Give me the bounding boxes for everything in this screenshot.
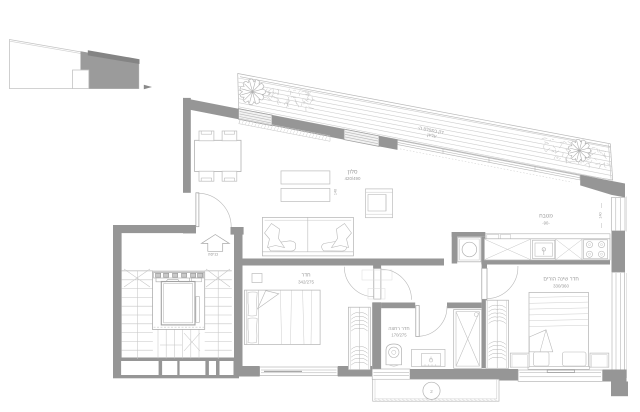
svg-text:420/490: 420/490 xyxy=(345,176,361,181)
svg-text:342/275: 342/275 xyxy=(298,280,314,285)
svg-text:-90-: -90- xyxy=(542,221,550,226)
svg-text:330/360: 330/360 xyxy=(553,284,569,289)
svg-text:140: 140 xyxy=(599,212,603,218)
svg-text:140: 140 xyxy=(334,189,338,195)
svg-text:2: 2 xyxy=(430,389,433,395)
svg-text:170/275: 170/275 xyxy=(391,333,407,338)
